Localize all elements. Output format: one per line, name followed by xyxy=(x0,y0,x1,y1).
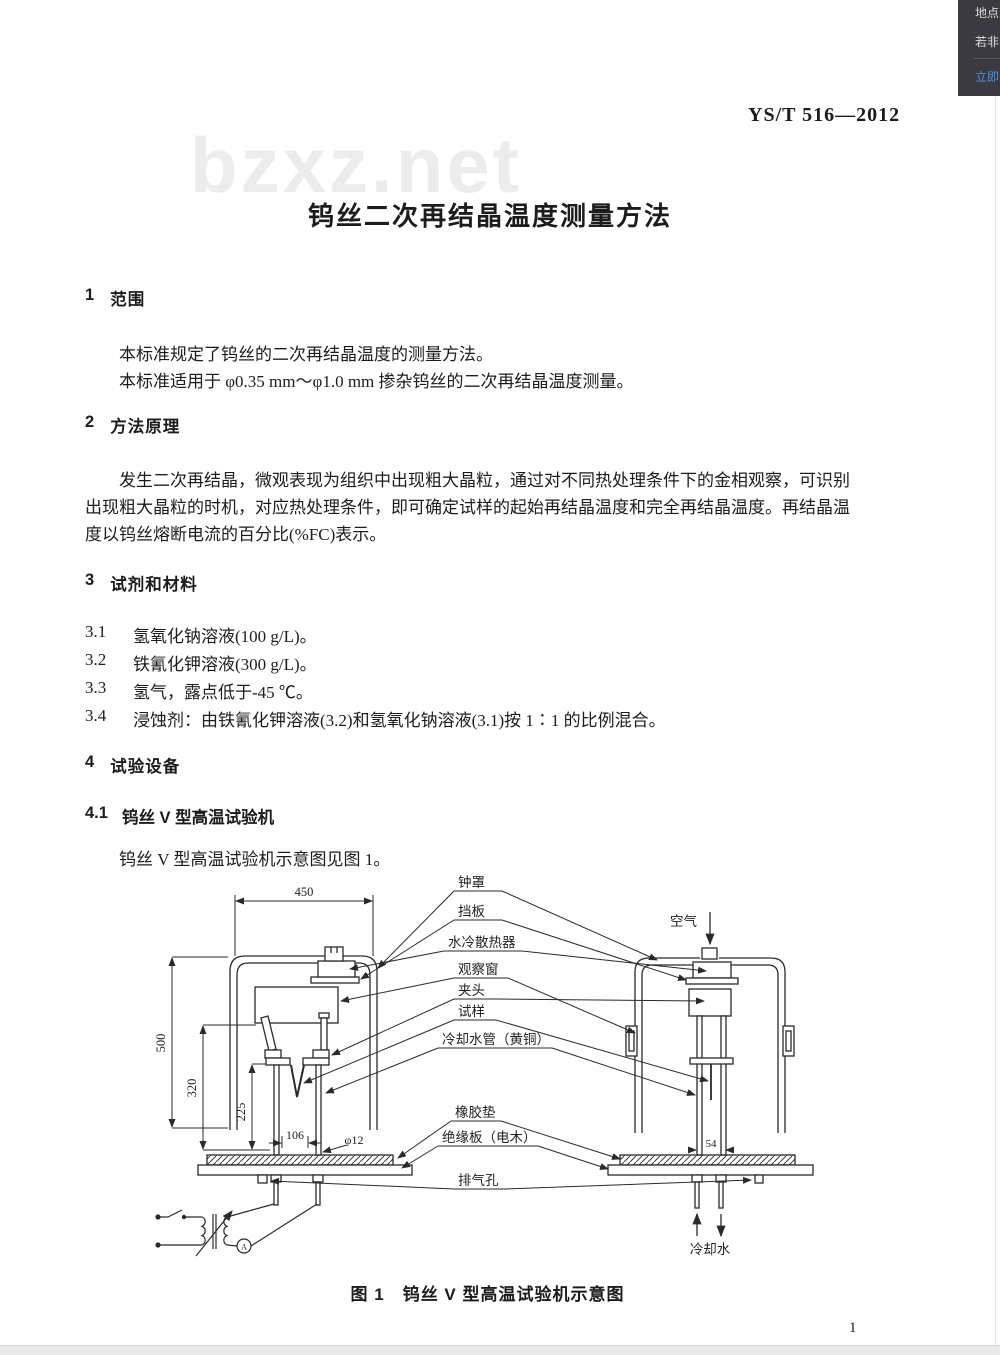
section2-line-3: 度以钨丝熔断电流的百分比(%FC)表示。 xyxy=(85,520,921,545)
site-overlay-panel: 地点 若非 立即 xyxy=(958,0,1000,96)
reagent-item: 3.3 氢气，露点低于-45 ℃。 xyxy=(85,678,921,703)
item-text: 氢氧化钠溶液(100 g/L)。 xyxy=(133,622,317,647)
label-cooling-pipe: 冷却水管（黄铜） xyxy=(442,1032,550,1047)
overlay-text-location: 地点 xyxy=(975,4,999,21)
section2-heading: 2 方法原理 xyxy=(85,413,180,437)
section1-heading: 1 范围 xyxy=(85,286,145,310)
section3-number: 3 xyxy=(85,571,95,595)
section3-title: 试剂和材料 xyxy=(110,571,198,595)
section4-number: 4 xyxy=(85,753,95,777)
dim-225: 225 xyxy=(234,1103,248,1122)
dim-54: 54 xyxy=(706,1138,718,1150)
label-specimen: 试样 xyxy=(458,1004,485,1019)
figure1-diagram: A xyxy=(60,868,960,1268)
label-insulation-board: 绝缘板（电木） xyxy=(442,1130,537,1145)
left-machine-drawing xyxy=(198,947,412,1205)
section1-paragraph-1: 本标准规定了钨丝的二次再结晶温度的测量方法。 xyxy=(85,340,955,365)
overlay-link-now[interactable]: 立即 xyxy=(975,68,999,85)
section4-heading: 4 试验设备 xyxy=(85,753,180,777)
dim-320: 320 xyxy=(185,1079,199,1098)
item-text: 浸蚀剂：由铁氰化钾溶液(3.2)和氢氧化钠溶液(3.1)按 1∶1 的比例混合。 xyxy=(133,706,666,731)
section2-line-1: 发生二次再结晶，微观表现为组织中出现粗大晶粒，通过对不同热处理条件下的金相观察，… xyxy=(85,466,955,491)
item-text: 氢气，露点低于-45 ℃。 xyxy=(133,678,313,703)
section3-heading: 3 试剂和材料 xyxy=(85,571,198,595)
label-radiator: 水冷散热器 xyxy=(448,935,516,950)
reagent-item: 3.4 浸蚀剂：由铁氰化钾溶液(3.2)和氢氧化钠溶液(3.1)按 1∶1 的比… xyxy=(85,706,921,731)
item-number: 3.2 xyxy=(85,650,133,675)
label-cooling-water: 冷却水 xyxy=(690,1242,731,1257)
label-observation-window: 观察窗 xyxy=(458,961,499,977)
document-title: 钨丝二次再结晶温度测量方法 xyxy=(0,196,980,233)
section2-title: 方法原理 xyxy=(110,413,180,437)
reagent-item: 3.2 铁氰化钾溶液(300 g/L)。 xyxy=(85,650,921,675)
figure1-caption: 图 1 钨丝 V 型高温试验机示意图 xyxy=(0,1280,975,1305)
dim-106: 106 xyxy=(286,1128,304,1142)
item-number: 3.4 xyxy=(85,706,133,731)
power-circuit-drawing xyxy=(156,1204,317,1256)
section1-paragraph-2: 本标准适用于 φ0.35 mm～φ1.0 mm 掺杂钨丝的二次再结晶温度测量。 xyxy=(85,367,955,392)
standard-code: YS/T 516—2012 xyxy=(748,104,900,127)
label-baffle: 挡板 xyxy=(458,904,485,919)
item-number: 3.3 xyxy=(85,678,133,703)
section4-1-heading: 4.1 钨丝 V 型高温试验机 xyxy=(85,804,274,828)
overlay-text-ifnot: 若非 xyxy=(975,33,999,50)
overlay-divider xyxy=(974,58,1000,59)
page-right-edge xyxy=(995,96,996,1345)
label-chuck: 夹头 xyxy=(458,983,485,998)
item-text: 铁氰化钾溶液(300 g/L)。 xyxy=(133,650,317,675)
section4-title: 试验设备 xyxy=(110,753,180,777)
label-air: 空气 xyxy=(670,914,697,929)
item-number: 3.1 xyxy=(85,622,133,647)
label-vent-hole: 排气孔 xyxy=(458,1173,499,1188)
dim-500: 500 xyxy=(154,1034,168,1053)
reagent-item: 3.1 氢氧化钠溶液(100 g/L)。 xyxy=(85,622,921,647)
section4-1-paragraph: 钨丝 V 型高温试验机示意图见图 1。 xyxy=(85,845,955,870)
section2-line-2: 出现粗大晶粒的时机，对应热处理条件，即可确定试样的起始再结晶温度和完全再结晶温度… xyxy=(85,493,921,518)
section1-number: 1 xyxy=(85,286,95,310)
page-number: 1 xyxy=(849,1320,857,1337)
section4-1-number: 4.1 xyxy=(85,804,108,828)
section1-title: 范围 xyxy=(110,286,145,310)
label-bell-jar: 钟罩 xyxy=(458,874,485,890)
dim-rod-diameter: φ12 xyxy=(345,1133,364,1147)
dim-450: 450 xyxy=(295,885,314,899)
section4-1-title: 钨丝 V 型高温试验机 xyxy=(122,804,274,828)
section2-number: 2 xyxy=(85,413,95,437)
ammeter-label: A xyxy=(241,1243,247,1252)
label-rubber-pad: 橡胶垫 xyxy=(455,1104,496,1120)
right-machine-drawing xyxy=(608,912,813,1236)
